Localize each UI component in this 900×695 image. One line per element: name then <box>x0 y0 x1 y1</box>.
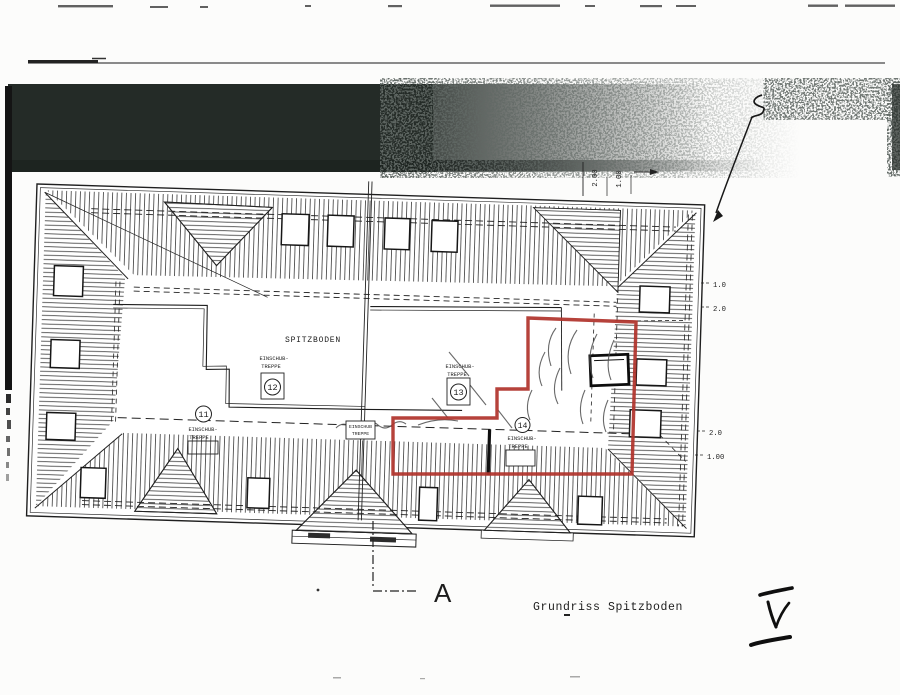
svg-text:12: 12 <box>267 383 277 393</box>
floor-plan-drawing: SPITZBODEN EINSCHUB- TREPPE 12 EINSCHUB-… <box>0 0 900 695</box>
svg-text:14: 14 <box>518 422 528 431</box>
dim-right-3: 2.0 <box>709 430 722 438</box>
section-marker: A <box>434 578 452 608</box>
dim-right-4: 1.00 <box>707 454 724 462</box>
drawing-title: Grundriss Spitzboden <box>533 601 683 614</box>
title-underline-speck <box>564 614 570 616</box>
svg-text:EINSCHUB-: EINSCHUB- <box>507 436 536 442</box>
svg-text:TREPPE: TREPPE <box>189 435 208 441</box>
roof-plan <box>26 171 705 556</box>
dim-right-1: 1.0 <box>713 282 726 290</box>
stair-hatch-box: EINSCHUB TREPPE <box>346 421 375 439</box>
scanned-floor-plan-page: SPITZBODEN EINSCHUB- TREPPE 12 EINSCHUB-… <box>0 0 900 695</box>
dark-chimney <box>590 354 629 385</box>
svg-text:EINSCHUB-: EINSCHUB- <box>259 356 288 362</box>
svg-text:TREPPE: TREPPE <box>261 364 280 370</box>
svg-text:TREPPE: TREPPE <box>508 444 527 450</box>
dim-top-2: 1.00 <box>616 170 624 187</box>
scan-artifact-dark-band <box>8 78 900 178</box>
svg-text:EINSCHUB: EINSCHUB <box>349 424 372 430</box>
svg-text:11: 11 <box>198 410 208 420</box>
svg-text:TREPPE: TREPPE <box>447 372 466 378</box>
svg-text:EINSCHUB-: EINSCHUB- <box>188 427 217 433</box>
dim-top-1: 2.00 <box>592 169 600 186</box>
svg-text:EINSCHUB-: EINSCHUB- <box>445 364 474 370</box>
room-label: SPITZBODEN <box>285 336 341 345</box>
dim-right-2: 2.0 <box>713 306 726 314</box>
svg-text:13: 13 <box>453 388 463 398</box>
svg-text:TREPPE: TREPPE <box>352 431 369 437</box>
